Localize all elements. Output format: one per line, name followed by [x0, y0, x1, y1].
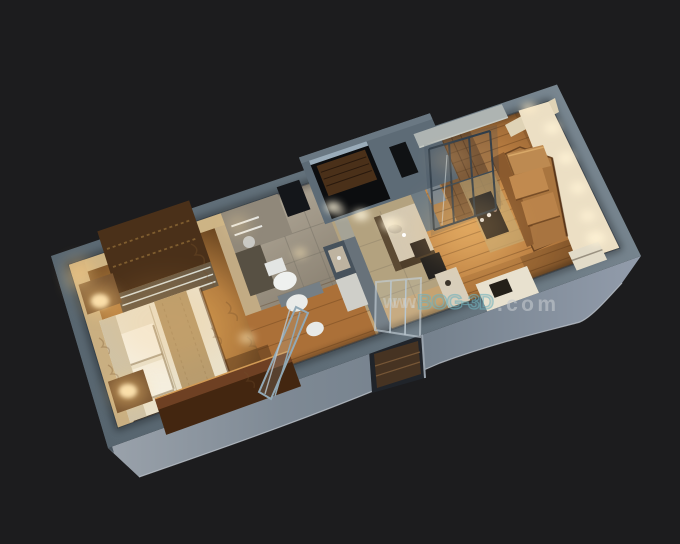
svg-text:BOG-3D: BOG-3D [417, 291, 494, 314]
svg-text:www.: www. [382, 292, 417, 312]
svg-text:.com: .com [497, 293, 556, 316]
